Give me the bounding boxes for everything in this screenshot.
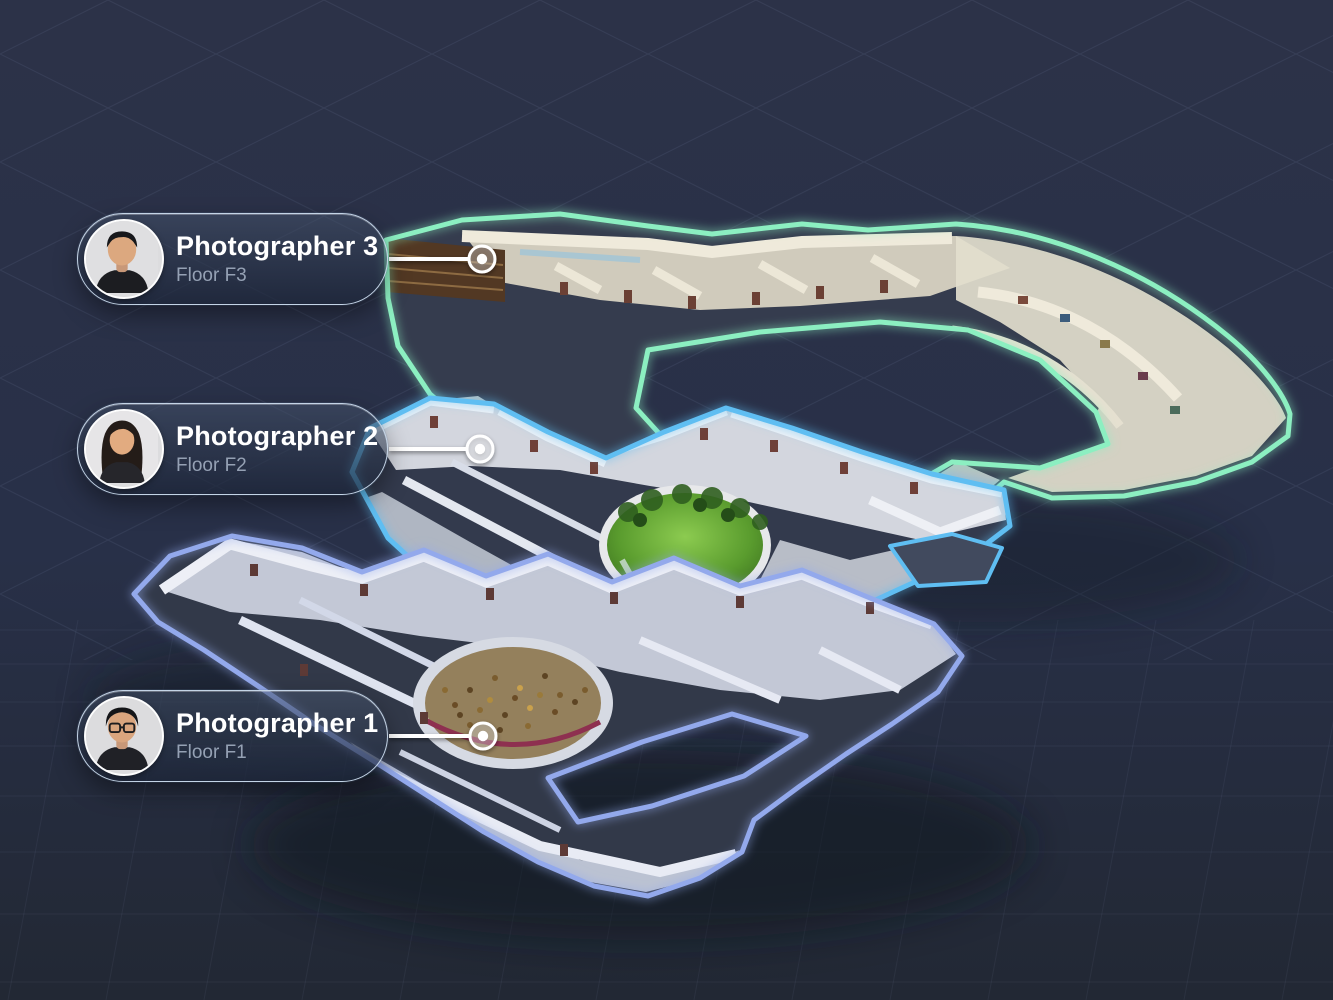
man-glasses-avatar: [84, 696, 164, 776]
exploded-floors-scene: Photographer 3 Floor F3 Photographer 2 F…: [0, 0, 1333, 1000]
floor-label: Floor F1: [176, 743, 378, 764]
diorama-model: [413, 637, 613, 769]
photographer-1-pill[interactable]: Photographer 1 Floor F1: [77, 690, 388, 782]
floor-label: Floor F3: [176, 266, 378, 287]
woman-long-hair-avatar: [84, 409, 164, 489]
photographer-3-pill[interactable]: Photographer 3 Floor F3: [77, 213, 388, 305]
floor-label: Floor F2: [176, 456, 378, 477]
photographer-2-pill[interactable]: Photographer 2 Floor F2: [77, 403, 388, 495]
photographer-name: Photographer 2: [176, 421, 378, 451]
photographer-name: Photographer 1: [176, 708, 378, 738]
floor-stack-3d-view[interactable]: [0, 0, 1333, 1000]
pano-marker-f2-icon[interactable]: [467, 436, 493, 462]
man-short-hair-avatar: [84, 219, 164, 299]
pano-marker-f1-icon[interactable]: [470, 723, 496, 749]
pano-marker-f3-icon[interactable]: [469, 246, 495, 272]
photographer-name: Photographer 3: [176, 231, 378, 261]
